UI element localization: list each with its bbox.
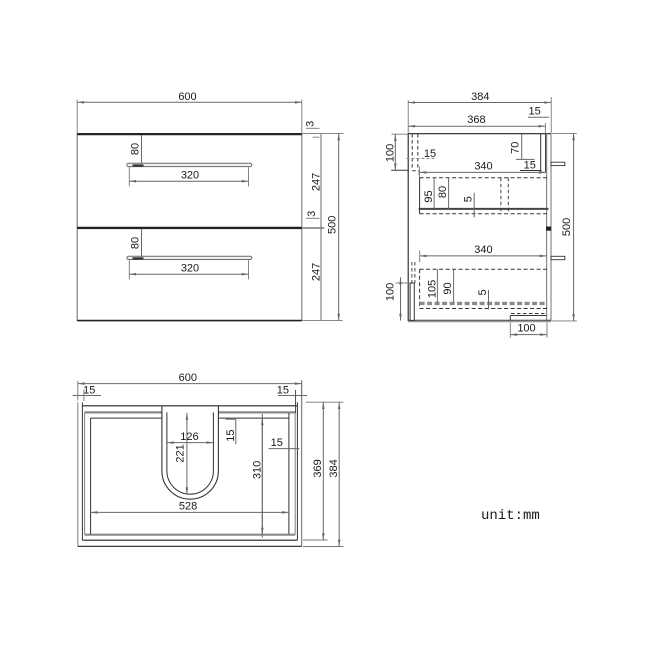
svg-text:70: 70 xyxy=(509,142,521,154)
svg-text:95: 95 xyxy=(423,190,435,202)
svg-text:369: 369 xyxy=(312,459,324,477)
svg-text:15: 15 xyxy=(524,160,536,172)
svg-text:80: 80 xyxy=(129,143,141,155)
svg-text:15: 15 xyxy=(424,148,436,160)
svg-text:5: 5 xyxy=(463,196,475,202)
svg-text:247: 247 xyxy=(311,263,323,281)
svg-text:15: 15 xyxy=(528,106,540,118)
svg-text:unit:mm: unit:mm xyxy=(481,508,540,524)
svg-text:384: 384 xyxy=(328,459,340,477)
svg-text:310: 310 xyxy=(252,461,264,479)
svg-text:600: 600 xyxy=(178,91,196,103)
svg-text:100: 100 xyxy=(517,323,535,335)
svg-text:500: 500 xyxy=(327,216,339,234)
svg-text:384: 384 xyxy=(471,91,489,103)
svg-text:320: 320 xyxy=(181,262,199,274)
svg-text:105: 105 xyxy=(426,280,438,298)
svg-text:600: 600 xyxy=(179,372,197,384)
svg-text:340: 340 xyxy=(474,244,492,256)
svg-text:80: 80 xyxy=(437,186,449,198)
svg-text:100: 100 xyxy=(385,283,397,301)
svg-text:528: 528 xyxy=(179,501,197,513)
svg-text:80: 80 xyxy=(129,237,141,249)
svg-text:15: 15 xyxy=(225,429,237,441)
svg-text:15: 15 xyxy=(277,384,289,396)
svg-text:15: 15 xyxy=(83,384,95,396)
svg-text:3: 3 xyxy=(304,121,316,127)
svg-text:368: 368 xyxy=(467,114,485,126)
svg-text:320: 320 xyxy=(181,169,199,181)
svg-text:340: 340 xyxy=(474,161,492,173)
svg-text:5: 5 xyxy=(477,289,489,295)
svg-text:100: 100 xyxy=(385,144,397,162)
svg-text:90: 90 xyxy=(442,282,454,294)
svg-text:221: 221 xyxy=(175,444,187,462)
svg-text:247: 247 xyxy=(311,173,323,191)
svg-text:500: 500 xyxy=(561,218,573,236)
svg-text:3: 3 xyxy=(306,211,318,217)
svg-text:15: 15 xyxy=(271,437,283,449)
svg-text:126: 126 xyxy=(180,431,198,443)
